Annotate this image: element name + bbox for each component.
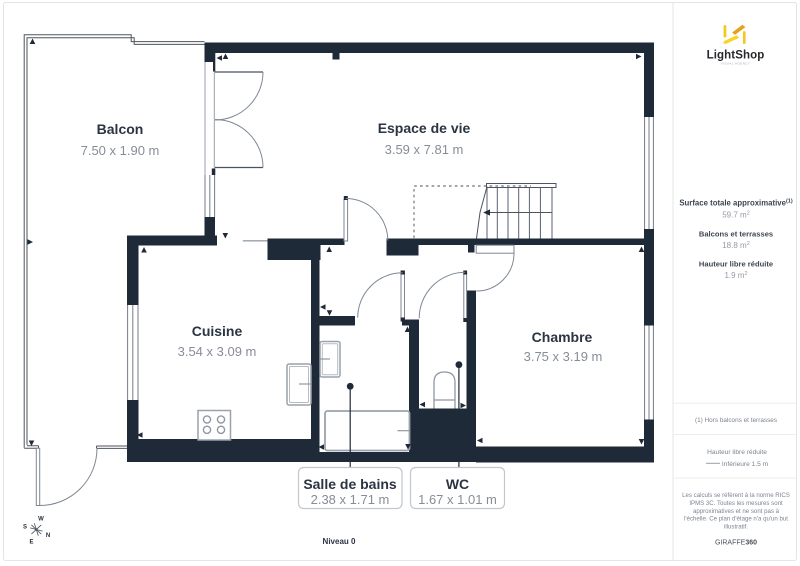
svg-text:Hauteur libre réduite: Hauteur libre réduite (699, 260, 773, 269)
svg-text:Niveau 0: Niveau 0 (323, 537, 356, 546)
svg-text:S: S (23, 525, 27, 531)
svg-text:1.9 m2: 1.9 m2 (724, 271, 747, 280)
svg-text:WC: WC (446, 476, 469, 492)
svg-text:3.54 x 3.09 m: 3.54 x 3.09 m (178, 344, 257, 359)
svg-text:2.38 x 1.71 m: 2.38 x 1.71 m (311, 492, 390, 507)
svg-text:Balcon: Balcon (97, 121, 144, 137)
svg-text:W: W (38, 517, 44, 523)
svg-text:7.50 x 1.90 m: 7.50 x 1.90 m (81, 143, 160, 158)
svg-text:(1) Hors balcons et terrasses: (1) Hors balcons et terrasses (695, 417, 777, 424)
svg-text:3.59 x 7.81 m: 3.59 x 7.81 m (385, 142, 464, 157)
svg-text:Espace de vie: Espace de vie (378, 120, 471, 136)
svg-text:IPMS 3C. Toutes les mesures so: IPMS 3C. Toutes les mesures sont (689, 500, 783, 507)
svg-text:Balcons et terrasses: Balcons et terrasses (699, 230, 773, 239)
svg-text:GIRAFFE360: GIRAFFE360 (715, 540, 757, 547)
svg-text:Cuisine: Cuisine (192, 323, 243, 339)
svg-text:Chambre: Chambre (532, 329, 593, 345)
svg-text:VISUAL AGENCY: VISUAL AGENCY (721, 62, 751, 66)
svg-text:Surface totale approximative(1: Surface totale approximative(1) (679, 199, 792, 208)
svg-text:1.67 x 1.01 m: 1.67 x 1.01 m (418, 492, 497, 507)
svg-text:l'échelle. Ce plan d'étage n'a: l'échelle. Ce plan d'étage n'a qu'un but (684, 516, 788, 523)
svg-text:Salle de bains: Salle de bains (303, 476, 397, 492)
svg-text:LightShop: LightShop (707, 50, 765, 62)
svg-text:59.7 m2: 59.7 m2 (722, 211, 750, 220)
svg-text:approximatives et ne sont pas: approximatives et ne sont pas à (693, 508, 780, 515)
svg-text:N: N (46, 533, 50, 539)
svg-text:18.8 m2: 18.8 m2 (722, 241, 750, 250)
svg-text:Inférieure 1.5 m: Inférieure 1.5 m (722, 461, 769, 468)
svg-text:3.75 x 3.19 m: 3.75 x 3.19 m (524, 349, 603, 364)
svg-text:Hauteur libre réduite: Hauteur libre réduite (707, 449, 767, 456)
svg-text:illustratif.: illustratif. (724, 524, 748, 531)
svg-text:Les calculs se réfèrent à la n: Les calculs se réfèrent à la norme RICS (682, 492, 790, 499)
svg-text:E: E (29, 540, 33, 546)
